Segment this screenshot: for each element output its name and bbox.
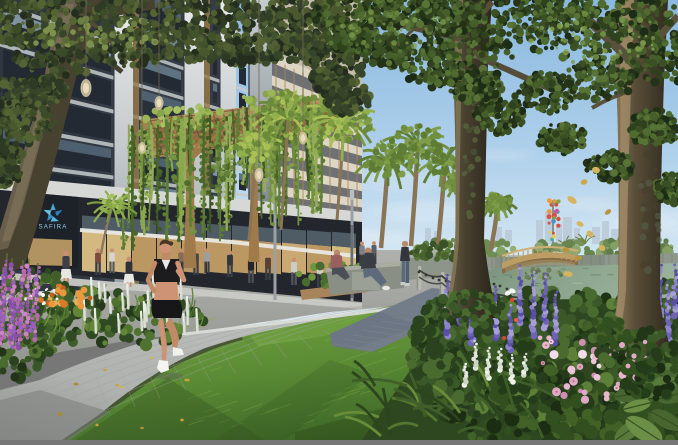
svg-text:SAFIRA: SAFIRA <box>39 224 68 231</box>
